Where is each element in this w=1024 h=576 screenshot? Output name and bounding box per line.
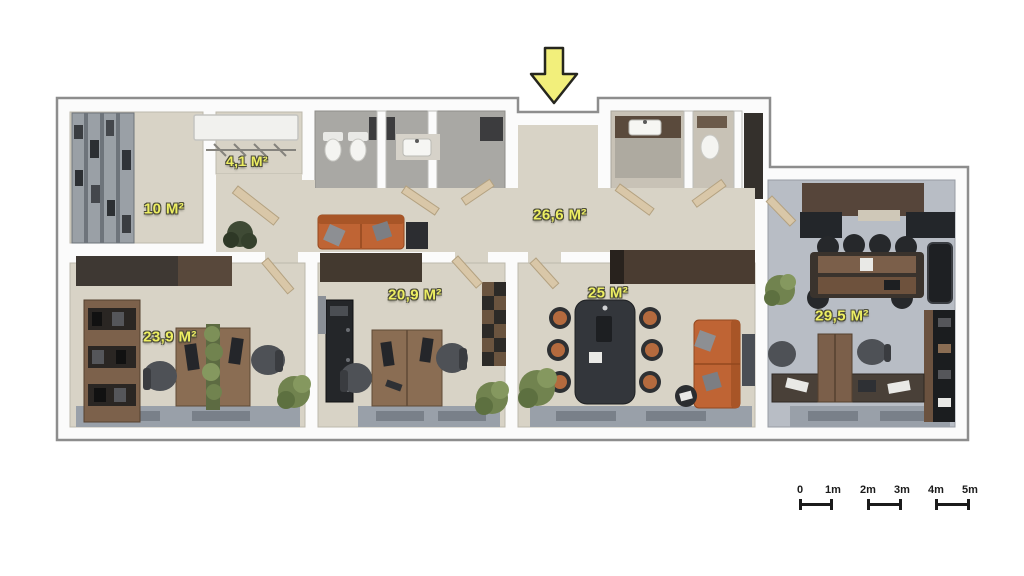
room-label-meeting-room: 25 M² [588, 285, 628, 302]
scale-segment [935, 503, 970, 506]
side-table-icon [675, 385, 697, 407]
wall-cabinet-icon [76, 256, 178, 286]
storage-room [70, 112, 203, 243]
scale-tick-label: 2m [860, 484, 876, 496]
room-label-hallway: 26,6 M² [533, 207, 587, 224]
bookshelf-icon [924, 310, 955, 422]
wall-cabinet-icon [610, 250, 624, 284]
wall-niche-icon [928, 243, 952, 303]
wall-panel-icon [742, 334, 755, 386]
sofa-icon [694, 320, 740, 408]
scale-tick-label: 1m [825, 484, 841, 496]
scale-tick-label: 5m [962, 484, 978, 496]
sofa-icon [318, 215, 404, 249]
floor-plan-rendering: 10 M² 4,1 M² 26,6 M² 23,9 M² 20,9 M² 25 … [0, 0, 1024, 576]
bookshelf-icon [84, 300, 140, 422]
desk-icon [372, 330, 442, 406]
scale-segment [867, 503, 902, 506]
entrance-arrow-icon [531, 48, 577, 103]
wardrobe-cabinet-icon [194, 115, 298, 140]
sink-icon [615, 116, 681, 178]
scale-segment [799, 503, 833, 506]
office-chair-icon [143, 361, 177, 391]
office-middle [318, 253, 509, 427]
room-label-storage: 10 M² [144, 201, 184, 218]
side-table-icon [406, 222, 428, 249]
room-label-wardrobe: 4,1 M² [226, 153, 268, 169]
office-chair-icon [340, 363, 372, 393]
wall-cabinet-icon [320, 253, 422, 282]
room-label-office-left: 23,9 M² [143, 329, 197, 346]
scale-bar: 0 1m 2m 3m 4m 5m [790, 484, 990, 518]
office-right [764, 180, 955, 427]
shower-corner-icon [480, 117, 503, 141]
office-chair-icon [436, 343, 468, 373]
room-label-office-right: 29,5 M² [815, 308, 869, 325]
scale-tick-label: 4m [928, 484, 944, 496]
room-label-office-middle: 20,9 M² [388, 287, 442, 304]
shelving-rack-icon [72, 113, 134, 243]
wall-cabinet-icon [178, 256, 232, 286]
utility-closet-icon [744, 113, 763, 199]
meeting-room [518, 250, 755, 427]
office-chair-icon [251, 345, 285, 375]
display-shelf-icon [482, 282, 506, 366]
scale-tick-label: 0 [797, 484, 803, 496]
wall-cabinet-icon [624, 250, 755, 284]
scale-tick-label: 3m [894, 484, 910, 496]
conference-table-icon [575, 300, 635, 404]
sink-icon [396, 134, 440, 160]
